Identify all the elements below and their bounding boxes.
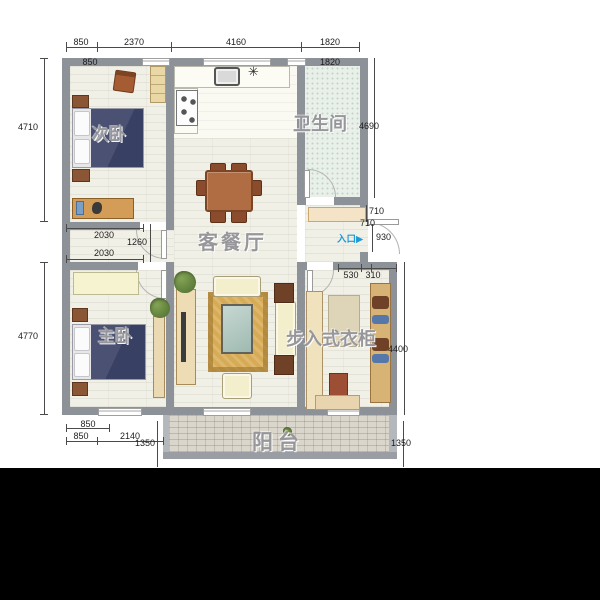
dim-line-mid-a [66,228,144,229]
kitchen-sink [214,67,240,86]
dim-balcony-right: 1350 [391,438,419,448]
coffee-table [221,304,253,354]
dim-line-corridor [150,224,151,262]
wall-bathroom-bottom-a [297,197,306,205]
entrance-text: 入口 [337,234,356,245]
door-leaf-master-bedroom [161,270,167,299]
nightstand [72,308,88,322]
dim-tick [163,437,164,445]
dim-closet-top-right: 310 [362,270,384,280]
dim-line-left-upper [44,58,45,222]
dim-tick [40,221,48,222]
dining-table [205,170,253,212]
cabinet-master-side [153,316,165,398]
dim-tick [301,42,302,52]
wall-left [62,58,70,415]
wardrobe-secondary [150,66,166,103]
closet-master [73,272,139,295]
tv [181,312,186,362]
dim-right-lower: 4400 [388,344,420,354]
hob-symbol: ✳ [248,67,259,77]
room-label-master-bedroom: 主卧 [98,322,132,347]
dim-line-left-lower [44,262,45,415]
room-label-secondary-bedroom: 次卧 [92,120,126,145]
dim-top-4: 1820 [308,37,352,47]
wall-closet-top-a [297,262,307,270]
plant-icon [150,298,170,318]
dim-tick [171,42,172,52]
dim-closet-top-left: 530 [340,270,362,280]
dim-top-inner-right: 1820 [312,57,348,67]
dim-line-top [66,47,360,48]
nightstand [72,382,88,396]
plant-icon [174,271,196,293]
dim-corridor: 1260 [114,237,147,247]
stove [176,90,198,126]
window-living-balcony [203,408,251,416]
sofa-loveseat [213,276,261,297]
dim-top-2: 2370 [112,37,156,47]
room-label-balcony: 阳台 [252,426,304,456]
dim-tick [359,42,360,52]
pillow [74,353,90,377]
dim-tick [66,224,67,232]
room-label-bathroom: 卫生间 [293,110,347,136]
end-table [274,283,294,303]
dim-tick [40,414,48,415]
desk-item [76,201,84,215]
desk-chair-secondary [113,70,137,94]
wall-bathroom-bottom-b [334,197,368,205]
dim-line-right-lower [404,262,405,415]
dim-top-1: 850 [63,37,99,47]
dim-mid-lower: 2030 [76,248,132,258]
dim-tick [143,255,144,263]
wall-bathroom-right [360,58,368,205]
dim-tick [396,264,397,272]
dim-tick [97,437,98,445]
wall-balcony-left [163,415,169,452]
dim-tick [40,58,48,59]
window-master-bedroom-bottom [98,408,142,416]
floorplan-sheet: ✳ 次卧 客餐厅 卫生间 主卧 步入 [0,0,600,600]
dim-left-upper: 4710 [14,122,42,132]
nightstand [72,169,90,182]
dim-bottom-wall: 850 [68,419,108,429]
letterbox-bottom [0,468,600,600]
closet-stool [329,373,348,396]
dim-top-3: 4160 [214,37,258,47]
entrance-label: 入口▶ [337,231,363,245]
nightstand [72,95,89,108]
dim-entry-door: 930 [376,232,398,242]
wall-master-bedroom-top [62,262,138,270]
end-table [274,355,294,375]
clothes-item [372,315,389,324]
dim-tick [66,255,67,263]
dim-tick [40,262,48,263]
dim-line-closet-top [338,268,397,269]
pillow [74,111,90,136]
window-secondary-bedroom-top [142,58,170,66]
wall-master-bedroom-right [166,262,174,415]
dim-entry-shelf-a: 710 [369,206,391,216]
dim-entry-shelf-b: 710 [360,218,382,228]
dim-line-balcony-left [157,421,158,467]
sofa-armchair [222,373,252,399]
pillow [74,327,90,351]
door-leaf-secondary-bedroom [161,230,167,259]
dim-top-inner-left: 850 [74,57,106,67]
clothes-item [372,354,389,363]
window-kitchen-top [203,58,271,66]
dim-line-mid-b [66,259,144,260]
dim-line-entry-door [372,224,373,252]
wall-secondary-bedroom-right [166,58,174,230]
entry-shelf [308,207,366,222]
door-leaf-bathroom [304,170,310,198]
pillow [74,139,90,164]
dim-bottom-a: 850 [66,431,96,441]
room-label-living-dining: 客餐厅 [198,226,267,255]
dim-balcony-left: 1350 [127,438,155,448]
clothes-item [372,296,389,309]
tv-cabinet [176,289,196,385]
dim-right-upper: 4690 [359,121,389,131]
dim-left-lower: 4770 [14,331,42,341]
desk-item [92,202,102,214]
closet-desk [315,395,360,410]
entrance-arrow-icon: ▶ [356,234,363,245]
window-bathroom-top [287,58,306,66]
dim-tick [143,224,144,232]
room-label-walk-in-closet: 步入式衣柜 [286,325,376,351]
dim-tick [338,264,339,272]
